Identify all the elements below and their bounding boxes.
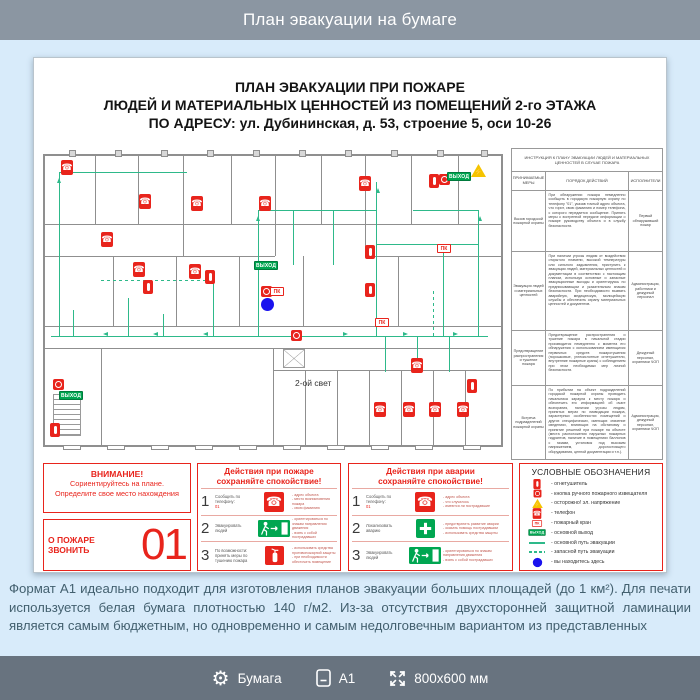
wall [95, 156, 96, 224]
instruction-table-title: ИНСТРУКЦИЯ К ПЛАНУ ЭВАКУАЦИИ ЛЮДЕЙ И МАТ… [512, 149, 662, 172]
cell-executors: Первый обнаруживший пожар [628, 191, 662, 251]
instruction-table-rows: Вызов городской пожарной охраныПри обнар… [512, 191, 662, 459]
column [299, 150, 306, 157]
action-label: По возможности: принять меры по тушению … [215, 548, 256, 563]
note-line: - при необходимости обесточить помещение [292, 555, 336, 564]
emergency-call-number: 01 [122, 523, 186, 567]
evacuation-route-line [449, 336, 450, 372]
resize-icon [389, 670, 406, 687]
route-arrow [478, 216, 482, 221]
emergency-call-box: О ПОЖАРЕ ЗВОНИТЬ 01 [43, 519, 191, 571]
legend-icon-cell [523, 556, 551, 569]
legend-icon-cell: ПК [523, 519, 551, 528]
legend-item: - вы находитесь здесь [523, 557, 659, 567]
phone-icon: ☎ [264, 492, 284, 512]
alarm-button-icon [291, 330, 302, 341]
gear-icon: ⚙ [212, 668, 230, 688]
footer-item-label: 800x600 мм [414, 671, 488, 686]
action-number: 2 [352, 520, 366, 537]
fire-hydrant-icon: ПК [375, 318, 389, 327]
fire-hydrant-icon: ПК [270, 287, 284, 296]
legend-label: - запасной путь эвакуации [551, 549, 614, 555]
evacuation-route-line [293, 210, 294, 265]
fire-actions-panel: Действия при пожаре сохраняйте спокойств… [197, 463, 341, 571]
extinguisher-icon [265, 546, 284, 565]
window [239, 445, 257, 450]
action-notes: - ориентироваться по знакам направления … [443, 549, 509, 563]
column-header-actions: ПОРЯДОК ДЕЙСТВИЙ [546, 172, 628, 190]
evacuation-route-line [443, 244, 444, 336]
wall [183, 156, 184, 256]
exit-sign-icon: ВЫХОД [447, 172, 471, 181]
legend-item: ВЫХОД- основной выход [523, 528, 659, 538]
exit-icon [258, 520, 290, 537]
cell-actions: Предотвращение распространения и тушение… [546, 331, 628, 385]
cell-actions: При обнаружении пожара немедленно сообщи… [546, 191, 628, 251]
wall [43, 154, 45, 447]
wall [401, 370, 402, 445]
phone-icon: ☎ [415, 492, 435, 512]
poster-title-line3: ПО АДРЕСУ: ул. Дубининская, д. 53, строе… [34, 114, 666, 132]
note-line: - место возникновения пожара [292, 497, 336, 506]
note-line: - имеются ли пострадавшие [443, 504, 508, 509]
cell-measure: Предотвращение распространения и тушение… [512, 331, 546, 385]
fire-hydrant-icon: ПК [532, 520, 542, 526]
cell-actions: По прибытии на объект подразделений горо… [546, 386, 628, 459]
instruction-table-header: ПРИНИМАЕМЫЕ МЕРЫ ПОРЯДОК ДЕЙСТВИЙ ИСПОЛН… [512, 172, 662, 191]
cell-executors: Администрация, дежурный персонал, охранн… [628, 386, 662, 459]
column [345, 150, 352, 157]
action-label: Локализовать аварию [366, 523, 407, 533]
window [327, 445, 345, 450]
action-icon-cell [256, 520, 292, 537]
phone-icon: ☎ [191, 196, 203, 211]
column [253, 150, 260, 157]
floor-plan: ☎☎☎☎☎☎☎☎☎☎☎☎☎ПКПКПКВЫХОДВЫХОДВЫХОД⚡2-ой … [43, 148, 505, 460]
action-notes: - использовать средства противопожарной … [292, 546, 337, 564]
footer-item-label: Бумага [238, 671, 282, 686]
area-label: 2-ой свет [295, 378, 331, 388]
phone-icon: ☎ [403, 402, 415, 417]
fire-actions-title: Действия при пожаре сохраняйте спокойств… [198, 464, 340, 486]
footer-bar: ⚙БумагаА1800x600 мм [0, 656, 700, 700]
action-number: 3 [201, 547, 215, 564]
action-number: 1 [352, 493, 366, 510]
reserve-route-line [433, 288, 434, 336]
footer-item: 800x600 мм [389, 670, 488, 687]
legend-label: - вы находитесь здесь [551, 559, 605, 565]
route-arrow [256, 216, 260, 221]
instruction-table: ИНСТРУКЦИЯ К ПЛАНУ ЭВАКУАЦИИ ЛЮДЕЙ И МАТ… [511, 148, 663, 460]
column [481, 150, 488, 157]
action-label: Эвакуировать людей [215, 523, 256, 533]
cell-measure: Встреча подразделений пожарной охраны [512, 386, 546, 459]
exit-sign-icon: ВЫХОД [59, 391, 83, 400]
wall [43, 154, 503, 156]
column-header-executors: ИСПОЛНИТЕЛИ [628, 172, 662, 190]
extinguisher-icon [50, 423, 60, 437]
voltage-warning-icon: ⚡ [532, 499, 543, 508]
cell-executors: Дежурный персонал, охранники ЧОП [628, 331, 662, 385]
accident-actions-rows: 1Сообщить по телефону:01☎- адрес объекта… [352, 488, 509, 569]
legend-items: - огнетушитель- кнопка ручного пожарного… [523, 479, 659, 567]
voltage-warning-icon: ⚡ [471, 164, 486, 177]
phone-icon: ☎ [374, 402, 386, 417]
wall [138, 156, 139, 224]
column [115, 150, 122, 157]
wall [43, 256, 275, 257]
action-row: 2Эвакуировать людей- ориентироваться по … [201, 516, 337, 543]
document-icon [316, 669, 331, 687]
table-row: Встреча подразделений пожарной охраныПо … [512, 386, 662, 459]
evacuation-route-line [376, 182, 377, 336]
legend-icon-cell: ВЫХОД [523, 528, 551, 537]
wall [398, 256, 399, 326]
wall [101, 348, 102, 445]
phone-icon: ☎ [411, 358, 423, 373]
reserve-route-line [101, 280, 211, 281]
evacuation-route-line [333, 210, 334, 265]
extinguisher-icon [533, 479, 540, 489]
wall [273, 348, 274, 445]
legend-panel: УСЛОВНЫЕ ОБОЗНАЧЕНИЯ - огнетушитель- кно… [519, 463, 663, 571]
alarm-button-icon [53, 379, 64, 390]
window [371, 445, 389, 450]
wall [43, 326, 503, 327]
phone-icon: ☎ [101, 232, 113, 247]
action-icon-cell [407, 547, 443, 564]
footer-item: ⚙Бумага [212, 668, 282, 688]
table-row: Предотвращение распространения и тушение… [512, 331, 662, 386]
action-label: Сообщить по телефону:01 [366, 494, 407, 509]
extinguisher-icon [467, 379, 477, 393]
wall [321, 156, 322, 224]
route-arrow [453, 332, 458, 336]
action-row: 3Эвакуировать людей- ориентироваться по … [352, 542, 509, 569]
action-icon-cell: ☎ [256, 492, 292, 512]
action-row: 1Сообщить по телефону:01☎- адрес объекта… [352, 489, 509, 516]
legend-label: - пожарный кран [551, 520, 591, 526]
legend-label: - огнетушитель [551, 481, 587, 487]
stairwell [283, 349, 305, 368]
note-line: - использовать средства противопожарной … [292, 546, 336, 555]
action-row: 3По возможности: принять меры по тушению… [201, 542, 337, 569]
exit-icon [409, 547, 441, 564]
note-line: - ориентироваться по знакам направления … [292, 517, 336, 531]
wall [411, 156, 412, 224]
route-arrow [203, 332, 208, 336]
action-notes: - предотвратить развитие аварии- оказать… [443, 522, 509, 536]
you-are-here-icon [261, 298, 274, 311]
footer-item-label: А1 [339, 671, 356, 686]
evacuation-route-line [258, 210, 259, 336]
main-route-icon [529, 542, 545, 544]
phone-icon: ☎ [189, 264, 201, 279]
action-phone-number: 01 [366, 504, 405, 509]
column [69, 150, 76, 157]
wall [231, 156, 232, 224]
evacuation-route-line [385, 336, 386, 372]
action-notes: - адрес объекта- место возникновения пож… [292, 493, 337, 511]
column [161, 150, 168, 157]
fire-hydrant-icon: ПК [437, 244, 451, 253]
table-row: Вызов городской пожарной охраныПри обнар… [512, 191, 662, 252]
cross-icon [416, 519, 435, 538]
page-title: План эвакуации на бумаге [243, 10, 457, 30]
wall [176, 256, 177, 326]
attention-line2: Сориентируйтесь на плане. [44, 479, 190, 489]
legend-label: - осторожно! эл. напряжение [551, 500, 620, 506]
route-arrow [57, 178, 61, 183]
evacuation-route-line [59, 172, 60, 336]
column [437, 150, 444, 157]
phone-icon: ☎ [61, 160, 73, 175]
wall [303, 256, 304, 326]
route-arrow [343, 332, 348, 336]
action-icon-cell [256, 546, 292, 565]
wall [275, 156, 276, 256]
phone-icon: ☎ [429, 402, 441, 417]
phone-icon: ☎ [359, 176, 371, 191]
route-arrow [153, 332, 158, 336]
evacuation-route-line [376, 244, 478, 245]
wall [273, 370, 501, 371]
wall [369, 370, 370, 445]
cell-actions: При наличии угрозы людям от воздействия … [546, 252, 628, 330]
action-row: 1Сообщить по телефону:01☎- адрес объекта… [201, 489, 337, 516]
footer-item: А1 [316, 669, 356, 687]
exit-sign-icon: ВЫХОД [254, 261, 278, 270]
evacuation-plan-poster: ПЛАН ЭВАКУАЦИИ ПРИ ПОЖАРЕ ЛЮДЕЙ И МАТЕРИ… [33, 57, 667, 573]
note-line: - свою фамилию [292, 506, 336, 511]
evacuation-route-line [478, 210, 479, 336]
action-number: 1 [201, 493, 215, 510]
legend-item: - основной путь эвакуации [523, 538, 659, 548]
legend-icon-cell [523, 551, 551, 553]
window [415, 445, 433, 450]
legend-title: УСЛОВНЫЕ ОБОЗНАЧЕНИЯ [523, 467, 659, 477]
evacuation-route-line [163, 314, 164, 336]
action-phone-number: 01 [215, 504, 254, 509]
note-line: - взять с собой пострадавших [443, 558, 508, 563]
action-row: 2Локализовать аварию- предотвратить разв… [352, 516, 509, 543]
exit-sign-icon: ВЫХОД [528, 530, 545, 536]
action-notes: - ориентироваться по знакам направления … [292, 517, 337, 540]
emergency-call-label: О ПОЖАРЕ ЗВОНИТЬ [48, 535, 122, 556]
note-line: - ориентироваться по знакам направления … [443, 549, 508, 558]
attention-title: ВНИМАНИЕ! [44, 469, 190, 479]
wall [365, 256, 501, 257]
note-line: - взять с собой пострадавших [292, 531, 336, 540]
header-bar: План эвакуации на бумаге [0, 0, 700, 40]
wall [365, 156, 366, 256]
wall [43, 224, 503, 225]
evacuation-route-line [51, 336, 488, 337]
action-number: 3 [352, 547, 366, 564]
extinguisher-icon [429, 174, 439, 188]
phone-icon: ☎ [133, 262, 145, 277]
phone-icon: ☎ [533, 508, 542, 519]
alarm-button-icon [533, 490, 541, 498]
fire-actions-rows: 1Сообщить по телефону:01☎- адрес объекта… [201, 488, 337, 569]
window [283, 445, 301, 450]
evacuation-route-line [258, 210, 376, 211]
action-label: Эвакуировать людей [366, 550, 407, 560]
column [391, 150, 398, 157]
attention-box: ВНИМАНИЕ! Сориентируйтесь на плане. Опре… [43, 463, 191, 513]
accident-actions-title: Действия при аварии сохраняйте спокойств… [349, 464, 512, 486]
action-icon-cell: ☎ [407, 492, 443, 512]
page: План эвакуации на бумаге ПЛАН ЭВАКУАЦИИ … [0, 0, 700, 700]
evacuation-route-line [73, 310, 74, 336]
wall [113, 256, 114, 326]
legend-label: - кнопка ручного пожарного извещателя [551, 491, 647, 497]
cell-executors: Администрация, работники и дежурный перс… [628, 252, 662, 330]
cell-measure: Вызов городской пожарной охраны [512, 191, 546, 251]
legend-label: - телефон [551, 510, 575, 516]
poster-title-line2: ЛЮДЕЙ И МАТЕРИАЛЬНЫХ ЦЕННОСТЕЙ ИЗ ПОМЕЩЕ… [34, 96, 666, 114]
window [463, 445, 481, 450]
route-arrow [103, 332, 108, 336]
wall [239, 256, 240, 326]
evacuation-route-line [413, 210, 478, 211]
column-header-measures: ПРИНИМАЕМЫЕ МЕРЫ [512, 172, 546, 190]
extinguisher-icon [143, 280, 153, 294]
reserve-route-icon [529, 551, 545, 553]
cell-measure: Эвакуация людей и материальных ценностей [512, 252, 546, 330]
you-are-here-icon [532, 558, 541, 567]
evacuation-route-line [59, 172, 187, 173]
action-label: Сообщить по телефону:01 [215, 494, 256, 509]
poster-title: ПЛАН ЭВАКУАЦИИ ПРИ ПОЖАРЕ ЛЮДЕЙ И МАТЕРИ… [34, 78, 666, 132]
route-arrow [376, 188, 380, 193]
legend-label: - основной выход [551, 530, 593, 536]
window [63, 445, 81, 450]
poster-title-line1: ПЛАН ЭВАКУАЦИИ ПРИ ПОЖАРЕ [34, 78, 666, 96]
wall [501, 154, 503, 447]
action-icon-cell [407, 519, 443, 538]
phone-icon: ☎ [259, 196, 271, 211]
action-notes: - адрес объекта- что случилось- имеются … [443, 495, 509, 509]
extinguisher-icon [365, 283, 375, 297]
legend-item: ПК- пожарный кран [523, 518, 659, 528]
legend-icon-cell [523, 542, 551, 544]
window [195, 445, 213, 450]
column [207, 150, 214, 157]
note-line: - использовать средства защиты [443, 531, 508, 536]
attention-line3: Определите свое место нахождения [44, 489, 190, 499]
phone-icon: ☎ [139, 194, 151, 209]
extinguisher-icon [205, 270, 215, 284]
wall [458, 156, 459, 224]
evacuation-route-line [128, 298, 129, 336]
extinguisher-icon [365, 245, 375, 259]
legend-label: - основной путь эвакуации [551, 540, 615, 546]
accident-actions-title-line2: сохраняйте спокойствие! [349, 477, 512, 487]
legend-item: ☎- телефон [523, 508, 659, 518]
window [151, 445, 169, 450]
action-number: 2 [201, 520, 215, 537]
description-text: Формат А1 идеально подходит для изготовл… [9, 580, 691, 636]
fire-actions-title-line2: сохраняйте спокойствие! [198, 477, 340, 487]
wall [337, 370, 338, 445]
window [107, 445, 125, 450]
phone-icon: ☎ [457, 402, 469, 417]
accident-actions-panel: Действия при аварии сохраняйте спокойств… [348, 463, 513, 571]
route-arrow [403, 332, 408, 336]
table-row: Эвакуация людей и материальных ценностей… [512, 252, 662, 331]
